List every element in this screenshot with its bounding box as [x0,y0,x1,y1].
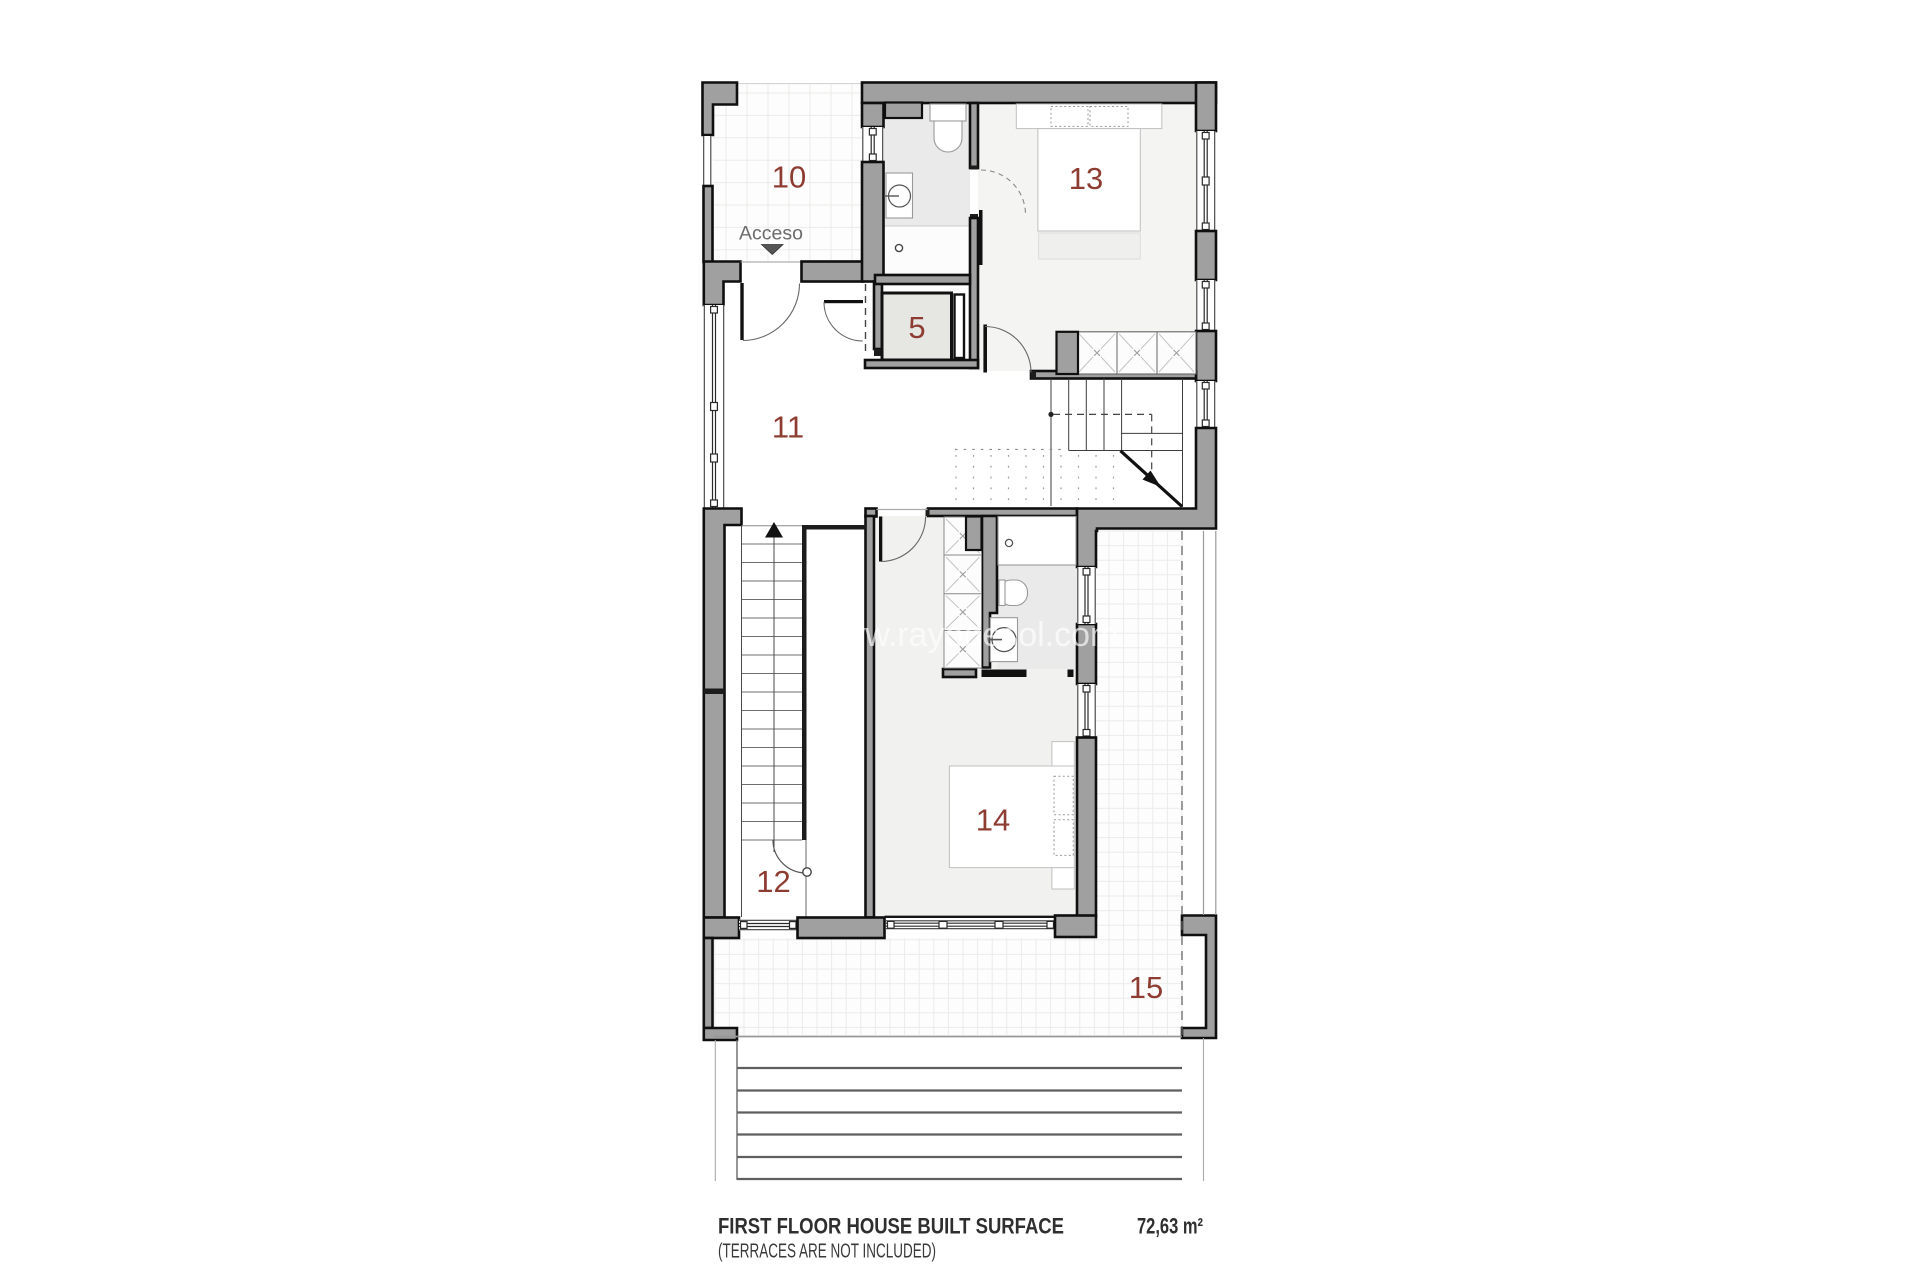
svg-text:(TERRACES ARE NOT INCLUDED): (TERRACES ARE NOT INCLUDED) [718,1241,936,1263]
svg-text:72,63 m²: 72,63 m² [1137,1214,1203,1239]
svg-text:15: 15 [1129,970,1163,1005]
svg-text:14: 14 [976,803,1010,838]
svg-text:FIRST FLOOR HOUSE BUILT SURFAC: FIRST FLOOR HOUSE BUILT SURFACE [718,1214,1064,1239]
svg-text:10: 10 [772,160,806,195]
svg-text:13: 13 [1069,161,1103,196]
svg-text:12: 12 [756,864,790,899]
svg-text:5: 5 [908,310,925,345]
svg-text:Acceso: Acceso [739,223,803,245]
svg-text:11: 11 [772,410,804,445]
svg-text:www.rayodesol.com: www.rayodesol.com [815,616,1118,654]
